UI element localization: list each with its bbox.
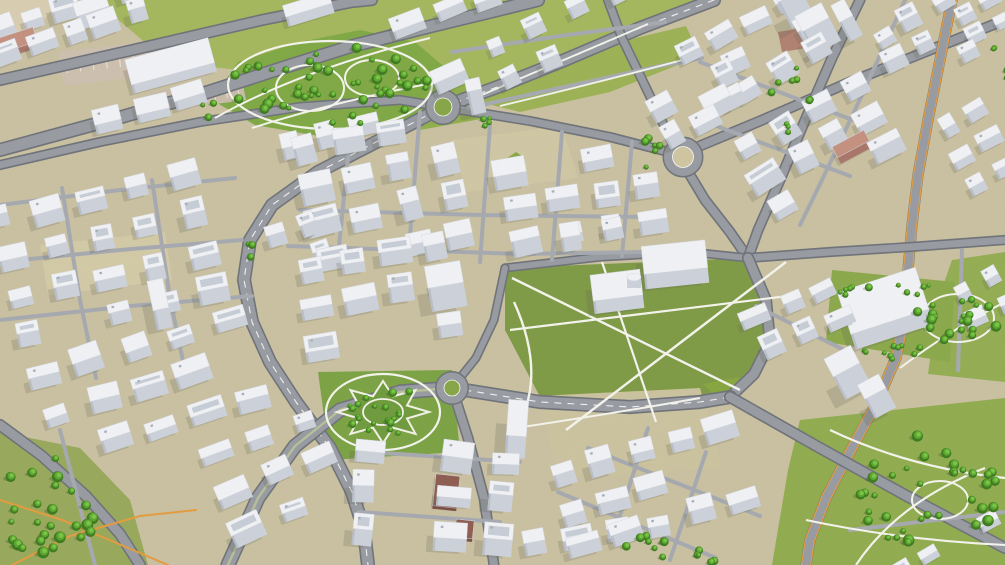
city-3d-map-render	[0, 0, 1005, 565]
texture-grain-overlay	[0, 0, 1005, 565]
map-viewport	[0, 0, 1005, 565]
